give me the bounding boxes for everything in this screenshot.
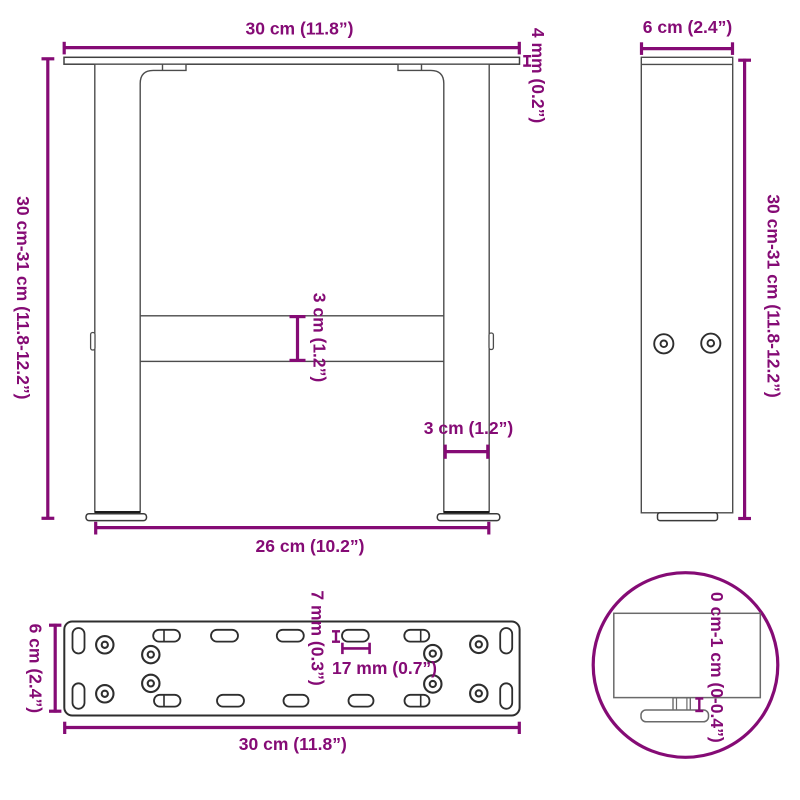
svg-text:3 cm (1.2”): 3 cm (1.2”) bbox=[424, 418, 513, 438]
svg-text:4 mm (0.2”): 4 mm (0.2”) bbox=[528, 28, 548, 123]
svg-text:30 cm (11.8”): 30 cm (11.8”) bbox=[246, 18, 354, 38]
svg-text:3 cm (1.2”): 3 cm (1.2”) bbox=[310, 293, 330, 382]
svg-text:30 cm (11.8”): 30 cm (11.8”) bbox=[239, 734, 347, 754]
svg-text:6 cm (2.4”): 6 cm (2.4”) bbox=[26, 624, 46, 713]
svg-text:26 cm (10.2”): 26 cm (10.2”) bbox=[256, 536, 365, 556]
svg-text:7 mm (0.3”): 7 mm (0.3”) bbox=[308, 590, 328, 685]
svg-text:6 cm (2.4”): 6 cm (2.4”) bbox=[643, 17, 732, 37]
svg-text:17 mm (0.7”): 17 mm (0.7”) bbox=[332, 658, 437, 678]
svg-text:30 cm-31 cm (11.8-12.2”): 30 cm-31 cm (11.8-12.2”) bbox=[13, 196, 33, 399]
svg-text:30 cm-31 cm (11.8-12.2”): 30 cm-31 cm (11.8-12.2”) bbox=[763, 194, 783, 397]
svg-text:0 cm-1 cm (0-0.4”): 0 cm-1 cm (0-0.4”) bbox=[707, 592, 727, 743]
